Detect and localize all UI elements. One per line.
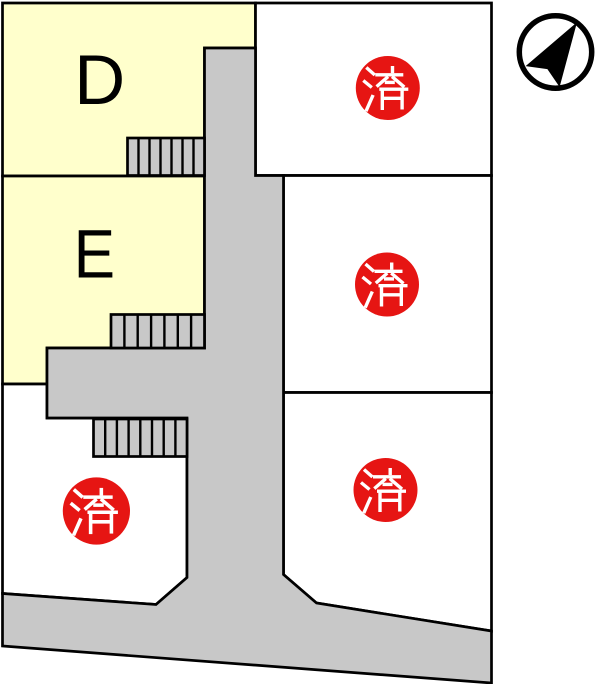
svg-text:E: E [74, 215, 115, 292]
svg-text:D: D [74, 40, 125, 119]
